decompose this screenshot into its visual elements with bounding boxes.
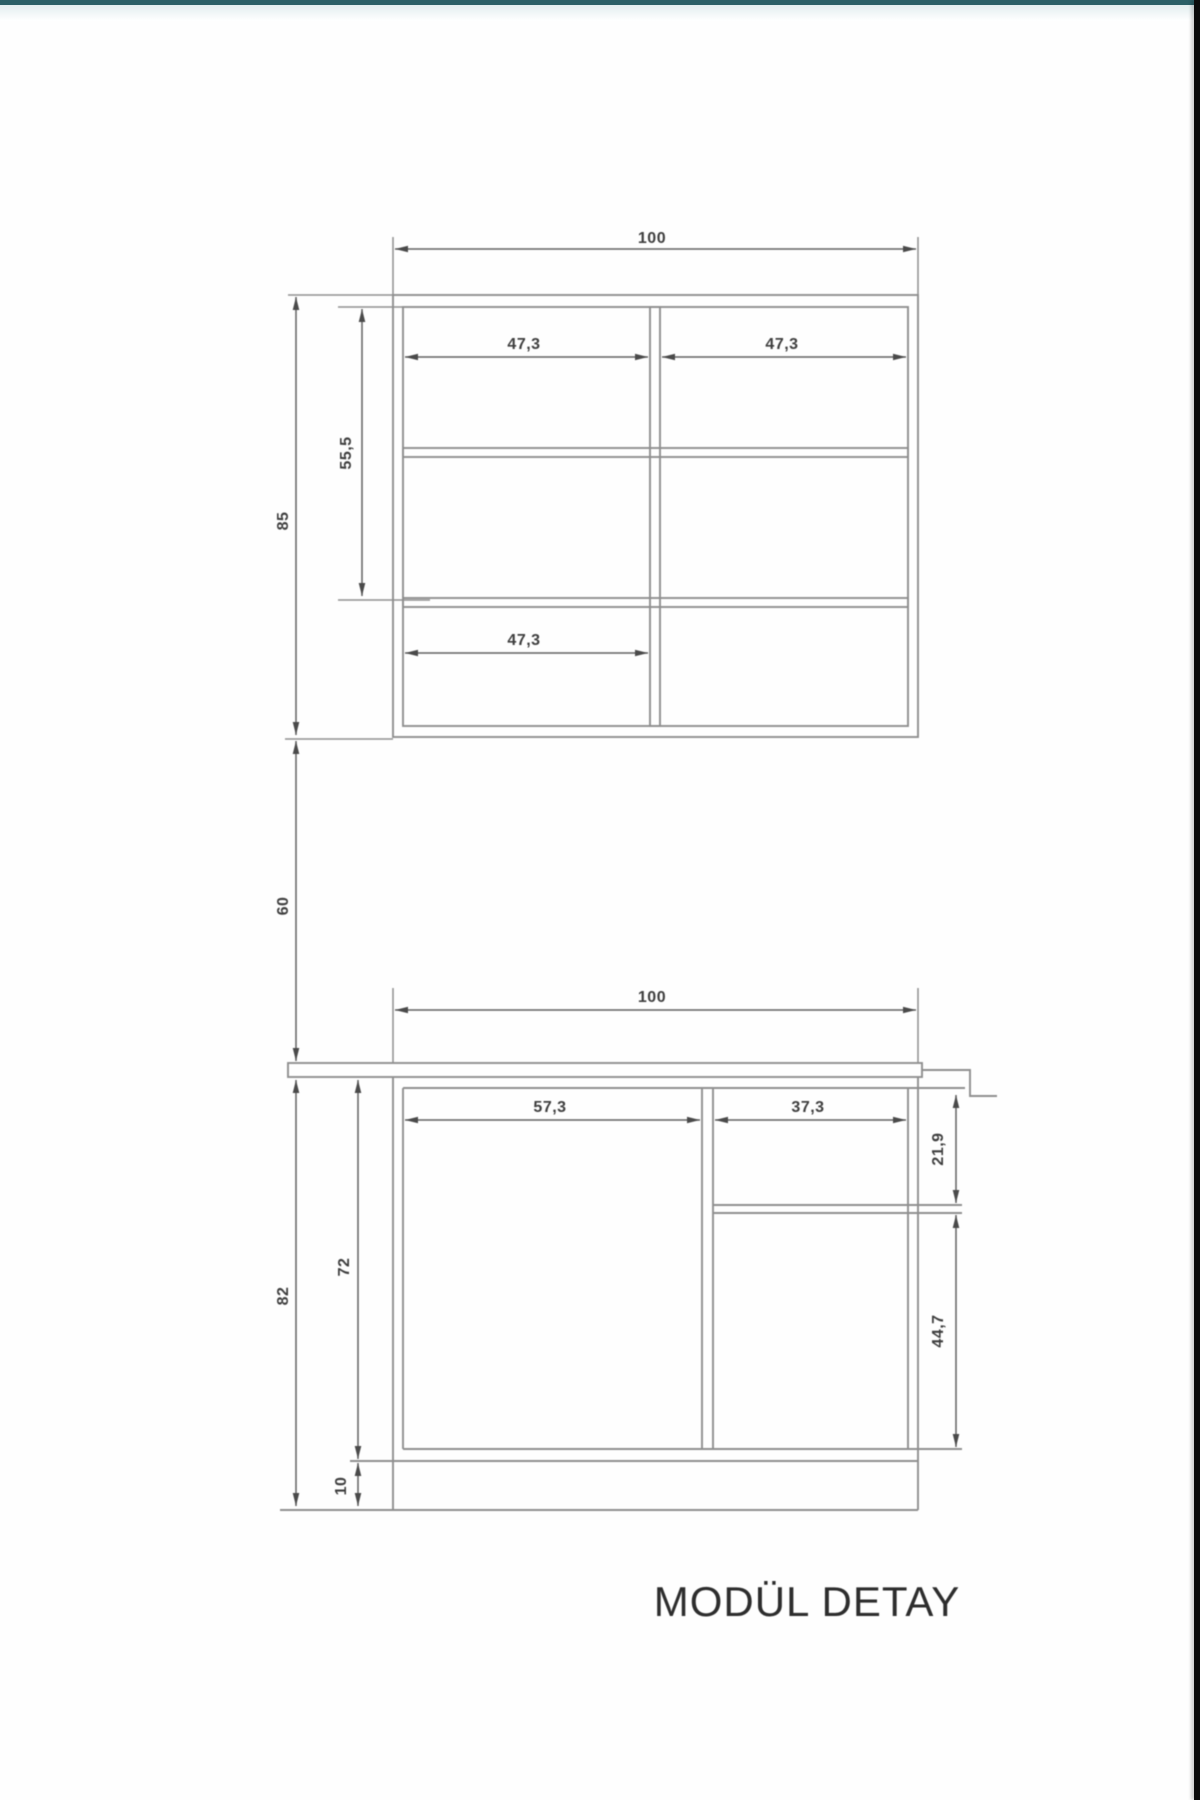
upper-cabinet-shelf-2 (403, 598, 908, 607)
gap-height-label: 60 (275, 897, 292, 916)
lower-height-label: 82 (275, 1287, 292, 1306)
countertop-edge-step (922, 1070, 997, 1096)
upper-right-bay-label: 47,3 (765, 336, 798, 353)
upper-interior-height-label: 55,5 (338, 436, 355, 469)
upper-height-label: 85 (275, 512, 292, 531)
module-detail-technical-drawing: 100 47,3 47,3 47,3 85 55,5 60 (0, 0, 1200, 1800)
lower-cabinet-dimensions: 100 57,3 37,3 82 72 10 21,9 44,7 (275, 988, 956, 1506)
lower-width-label: 100 (638, 989, 666, 1006)
scanned-drawing-page: 100 47,3 47,3 47,3 85 55,5 60 (0, 0, 1200, 1800)
upper-cabinet-outer-carcass (393, 295, 918, 737)
arrowheads-pointing-right (635, 246, 916, 1124)
arrowheads-pointing-left (395, 246, 728, 1124)
upper-cabinet-shelf-1 (403, 448, 908, 457)
lower-right-bay-label: 37,3 (791, 1099, 824, 1116)
lower-left-bay-label: 57,3 (533, 1099, 566, 1116)
upper-bottom-bay-label: 47,3 (507, 632, 540, 649)
gap-dimension: 60 (275, 741, 296, 1061)
lower-cabinet-divider (702, 1088, 713, 1449)
upper-cabinet-inner-carcass (403, 307, 908, 726)
upper-width-label: 100 (638, 230, 666, 247)
upper-left-bay-label: 47,3 (507, 336, 540, 353)
upper-cabinet (393, 295, 918, 737)
door-section-label: 44,7 (930, 1314, 947, 1347)
drawing-title: MODÜL DETAY (654, 1578, 961, 1625)
carcass-height-label: 72 (336, 1258, 353, 1277)
lower-cabinet-countertop (288, 1063, 922, 1077)
plinth-height-label: 10 (333, 1477, 350, 1496)
drawer-section-label: 21,9 (930, 1132, 947, 1165)
lower-cabinet (280, 1063, 997, 1510)
upper-cabinet-center-divider (650, 307, 660, 726)
photo-right-edge-strip (1194, 0, 1200, 1800)
